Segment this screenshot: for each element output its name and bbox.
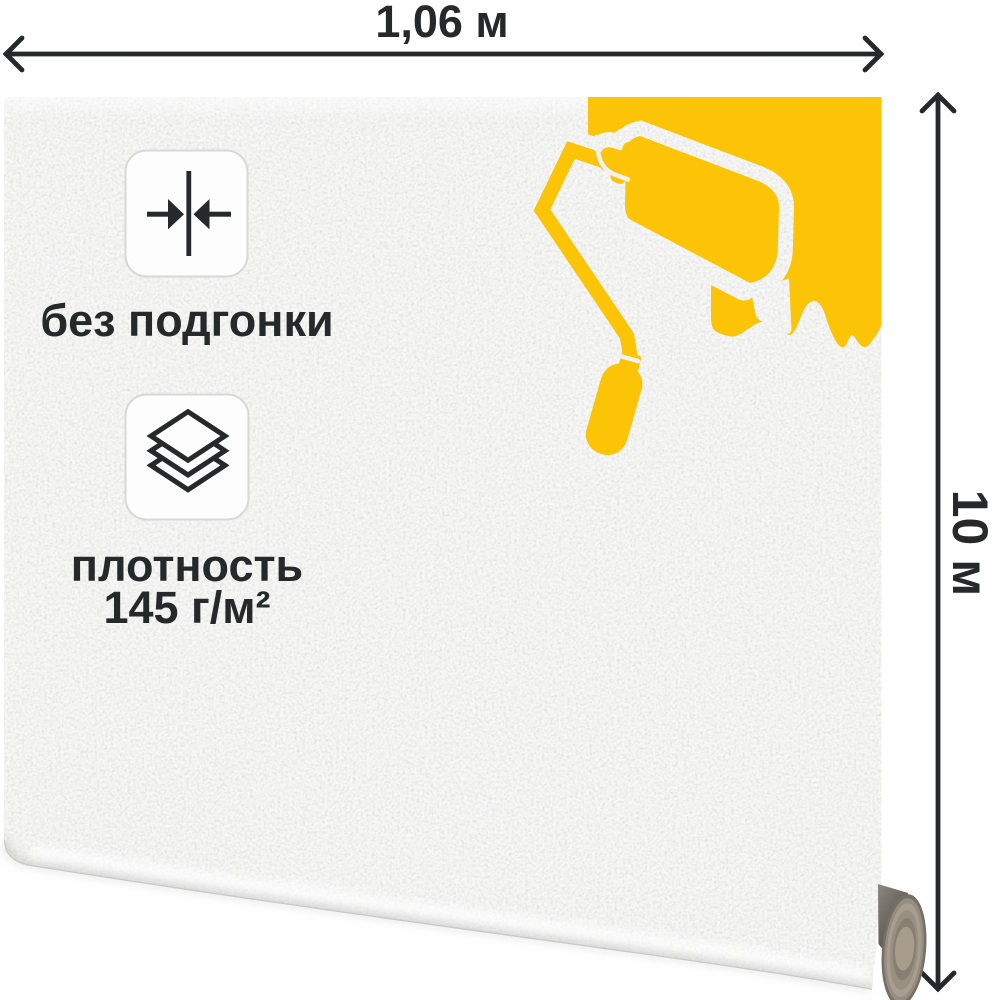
svg-text:145 г/м²: 145 г/м² xyxy=(103,582,270,633)
svg-text:без подгонки: без подгонки xyxy=(40,295,333,346)
svg-text:10 м: 10 м xyxy=(942,490,998,597)
svg-text:1,06 м: 1,06 м xyxy=(375,0,508,47)
